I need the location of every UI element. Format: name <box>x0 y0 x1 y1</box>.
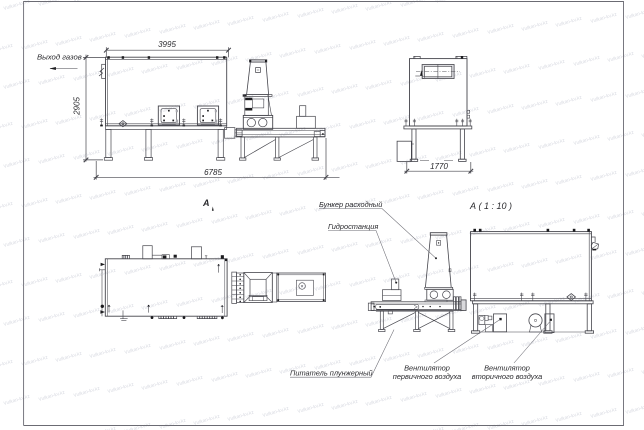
svg-text:Питатель плунжерный: Питатель плунжерный <box>290 369 373 378</box>
svg-text:Бункер расходный: Бункер расходный <box>319 200 382 209</box>
svg-text:Выход газов: Выход газов <box>37 53 82 62</box>
svg-text:А: А <box>202 198 210 208</box>
svg-text:1770: 1770 <box>430 162 448 171</box>
svg-text:6785: 6785 <box>204 168 222 177</box>
svg-text:первичного воздуха: первичного воздуха <box>393 372 461 381</box>
svg-text:3995: 3995 <box>158 40 176 49</box>
svg-text:А ( 1 : 10 ): А ( 1 : 10 ) <box>469 201 512 211</box>
svg-text:вторичного воздуха: вторичного воздуха <box>472 372 542 381</box>
svg-text:Гидростанция: Гидростанция <box>328 222 378 231</box>
svg-text:2905: 2905 <box>73 97 82 116</box>
